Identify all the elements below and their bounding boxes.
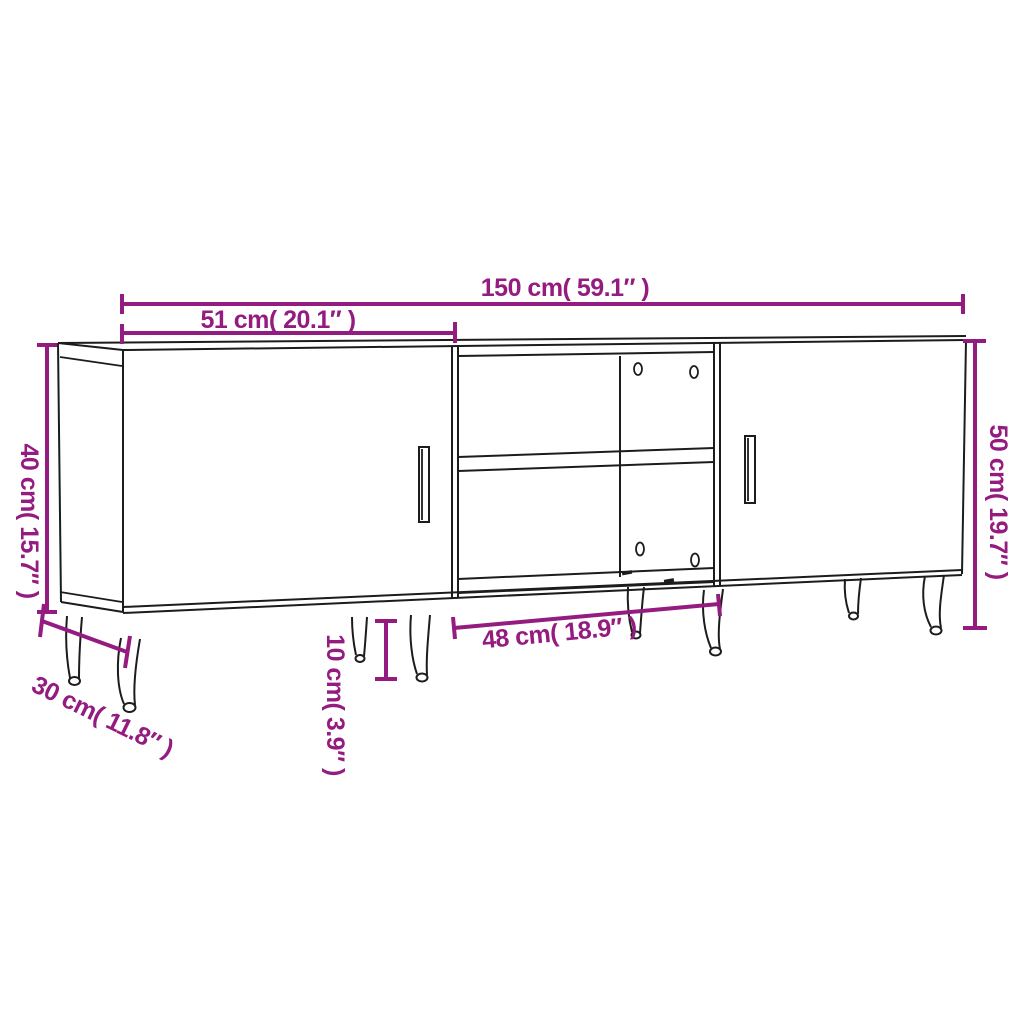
dimension-lines (37, 294, 987, 679)
cabinet-right-edge (962, 340, 966, 574)
label-right-height: 50 cm( 19.7″ ) (984, 424, 1012, 579)
leg-middle-front-left (410, 615, 430, 682)
screw-hole-top-right (690, 366, 698, 378)
leg-back-right (845, 578, 861, 620)
dimension-right-height (963, 341, 987, 628)
leg-middle-back-left (352, 617, 367, 662)
label-door-width: 51 cm( 20.1″ ) (200, 306, 355, 334)
cabinet-top-left-edge (58, 343, 123, 350)
label-leg-height: 10 cm( 3.9″ ) (321, 634, 349, 776)
label-depth: 30 cm( 11.8″ ) (27, 671, 178, 764)
leg-front-right (923, 575, 944, 635)
cabinet-left-side-edge (58, 343, 61, 602)
right-door-handle (745, 436, 755, 503)
label-total-width: 150 cm( 59.1″ ) (481, 274, 650, 302)
product-dimension-diagram: 150 cm( 59.1″ ) 51 cm( 20.1″ ) 40 cm( 15… (0, 0, 1024, 1024)
middle-shelf-top-edge (458, 448, 714, 457)
cabinet-bottom-edge-lower (123, 575, 962, 613)
label-left-height: 40 cm( 15.7″ ) (15, 443, 43, 598)
middle-compartment-top-edge (458, 352, 714, 356)
left-side-bottom-board-line (60, 592, 122, 602)
left-door-handle-outline (419, 447, 429, 522)
left-door-handle (419, 447, 429, 522)
cabinet-drawing (58, 336, 966, 712)
right-door-handle-outline (745, 436, 755, 503)
middle-bottom-board-top-edge (458, 568, 714, 579)
leg-back-left (66, 616, 82, 685)
dimension-leg-height (375, 621, 397, 679)
left-side-top-board-line (60, 357, 122, 366)
middle-shelf-front-edge (458, 462, 714, 471)
screw-hole-bottom-left (636, 543, 644, 556)
screw-hole-bottom-right (691, 554, 699, 567)
cabinet-left-side-bottom-edge (61, 602, 123, 612)
screw-hole-top-left (634, 363, 642, 375)
label-middle-width: 48 cm( 18.9″ ) (481, 612, 638, 655)
dimension-diagram-canvas: 150 cm( 59.1″ ) 51 cm( 20.1″ ) 40 cm( 15… (0, 0, 1024, 1024)
